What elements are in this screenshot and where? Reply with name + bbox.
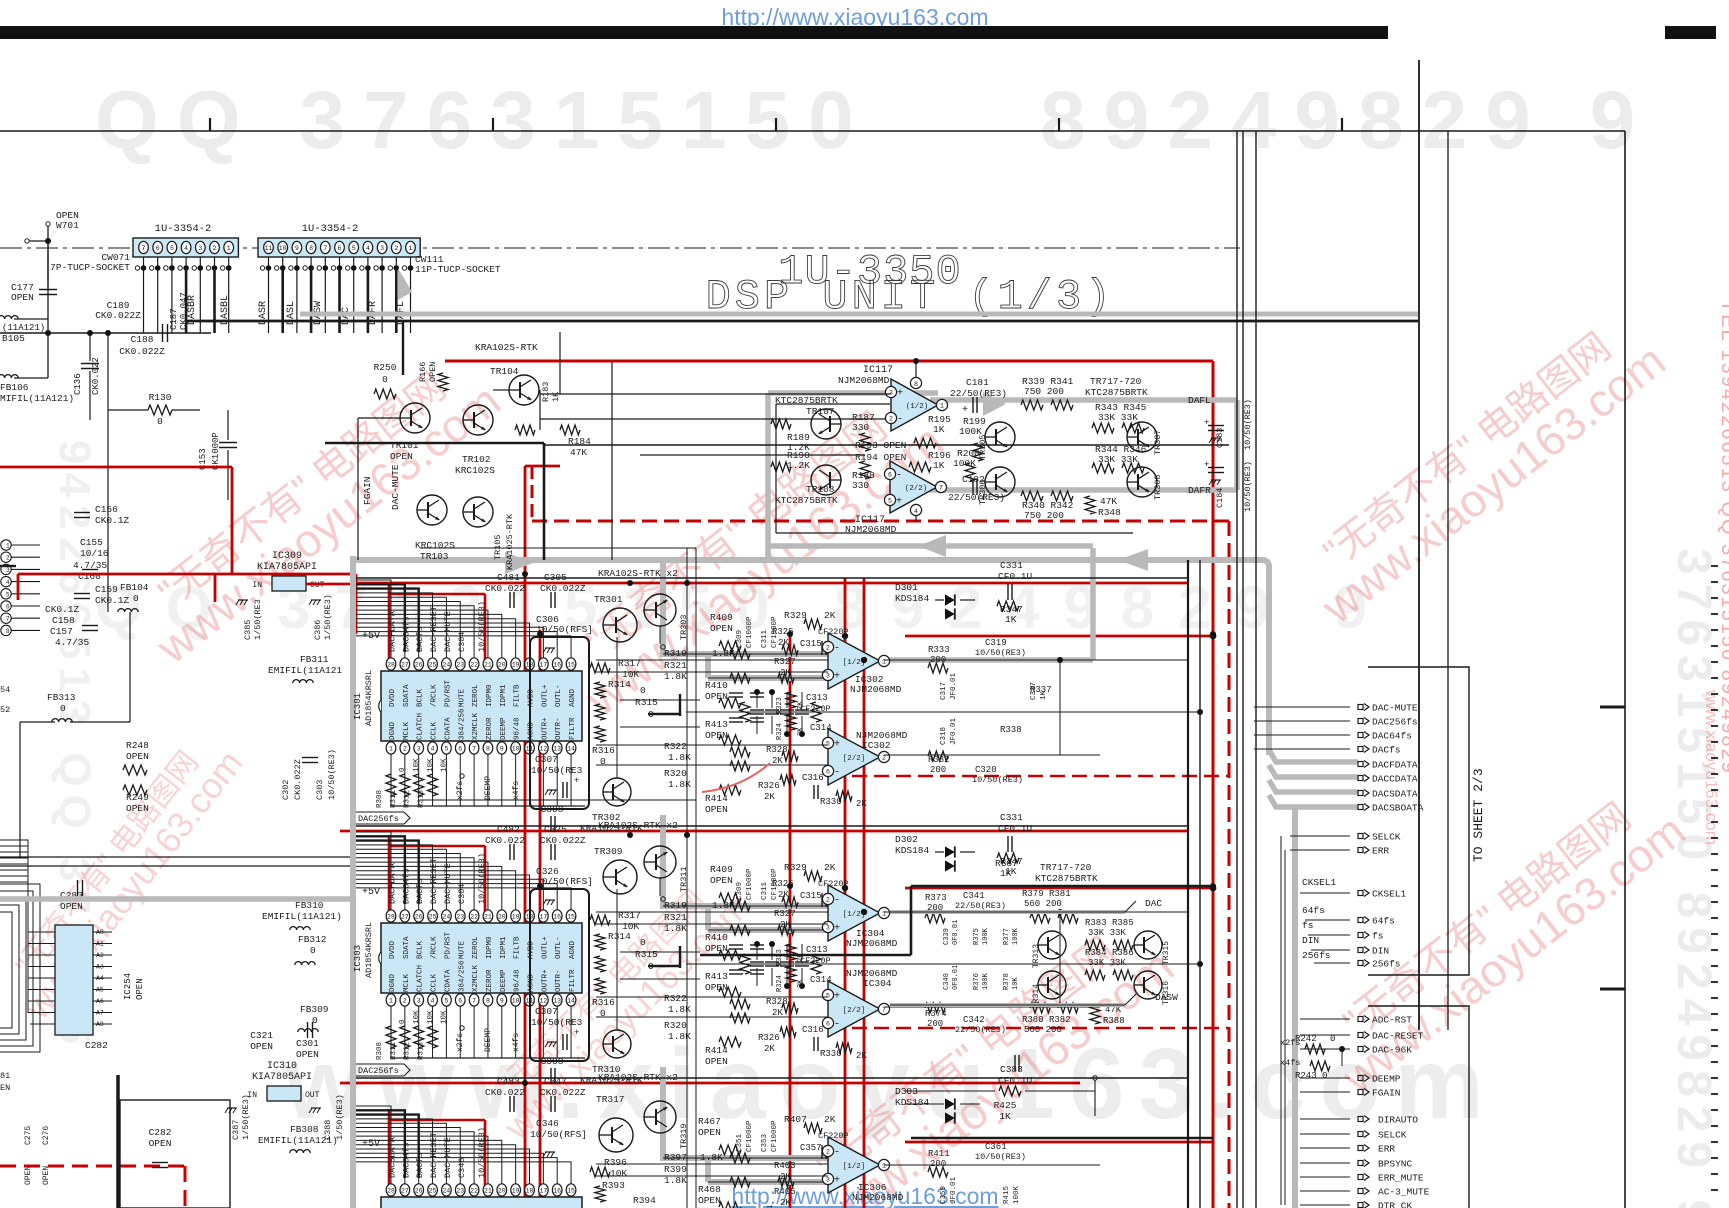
svg-text:CF1000P: CF1000P xyxy=(746,616,754,648)
svg-text:OPEN: OPEN xyxy=(296,1049,319,1060)
svg-text:384/256: 384/256 xyxy=(458,708,466,740)
svg-text:C351: C351 xyxy=(736,1133,744,1152)
svg-text:5: 5 xyxy=(352,245,356,252)
svg-text:96/48: 96/48 xyxy=(514,969,522,992)
svg-text:C282: C282 xyxy=(149,1127,172,1138)
svg-text:3: 3 xyxy=(826,672,830,679)
svg-text:A2: A2 xyxy=(96,952,104,959)
svg-text:C156: C156 xyxy=(95,504,118,515)
svg-text:23: 23 xyxy=(456,662,464,669)
svg-text:FB309: FB309 xyxy=(300,1004,329,1015)
svg-text:23: 23 xyxy=(456,1188,464,1195)
svg-text:1: 1 xyxy=(940,402,944,409)
svg-text:28: 28 xyxy=(387,1188,395,1195)
svg-text:DAC-MUTE: DAC-MUTE xyxy=(443,863,453,904)
svg-text:DAC64fs: DAC64fs xyxy=(401,616,411,652)
svg-text:CCLK: CCLK xyxy=(431,721,439,740)
svg-text:8: 8 xyxy=(486,746,490,753)
svg-text:384/256: 384/256 xyxy=(458,960,466,992)
svg-text:256fs: 256fs xyxy=(1372,959,1401,970)
svg-text:OPEN: OPEN xyxy=(705,691,728,702)
svg-text:1: 1 xyxy=(6,543,10,550)
svg-text:C317: C317 xyxy=(940,682,948,700)
svg-text:25: 25 xyxy=(429,662,437,669)
svg-text:DAC-MUTE: DAC-MUTE xyxy=(443,611,453,652)
svg-text:C386: C386 xyxy=(313,620,323,640)
svg-text:19: 19 xyxy=(512,1188,520,1195)
svg-text:2: 2 xyxy=(826,896,830,903)
svg-text:C331: C331 xyxy=(1000,812,1023,823)
svg-text:26: 26 xyxy=(415,662,423,669)
svg-text:560 200: 560 200 xyxy=(1024,1025,1062,1035)
svg-text:R393: R393 xyxy=(602,1180,625,1191)
svg-text:6: 6 xyxy=(156,245,160,252)
svg-text:R315: R315 xyxy=(635,697,658,708)
svg-text:7: 7 xyxy=(472,746,476,753)
svg-text:2K: 2K xyxy=(764,792,775,802)
svg-text:KRA102S-RTK x2: KRA102S-RTK x2 xyxy=(598,820,678,831)
svg-text:R403: R403 xyxy=(774,1161,796,1171)
svg-text:R388: R388 xyxy=(1103,1016,1125,1026)
svg-text:DVDD: DVDD xyxy=(389,940,397,959)
svg-text:C311: C311 xyxy=(761,881,769,900)
svg-text:10/50(RE3): 10/50(RE3) xyxy=(327,749,337,800)
svg-text:0: 0 xyxy=(157,416,163,427)
svg-text:R320: R320 xyxy=(664,1020,687,1031)
svg-text:100K: 100K xyxy=(959,426,982,437)
svg-text:R373: R373 xyxy=(925,893,947,903)
svg-text:+: + xyxy=(1204,418,1209,428)
svg-text:-: - xyxy=(834,1148,840,1159)
svg-text:R324: R324 xyxy=(776,975,784,992)
svg-text:x4fs: x4fs xyxy=(512,1033,521,1052)
svg-text:TR103: TR103 xyxy=(420,551,449,562)
svg-text:-: - xyxy=(834,768,840,779)
svg-text:DIN: DIN xyxy=(1372,946,1389,957)
svg-text:R468: R468 xyxy=(698,1184,721,1195)
svg-text:KRA102S-RTK x2: KRA102S-RTK x2 xyxy=(598,568,678,579)
svg-text:X2MCLK: X2MCLK xyxy=(472,964,480,992)
svg-text:ERR: ERR xyxy=(1372,846,1389,857)
svg-text:DEEMP: DEEMP xyxy=(484,776,493,800)
svg-text:C275: C275 xyxy=(24,1126,33,1145)
svg-text:D302: D302 xyxy=(895,834,918,845)
svg-text:FB106: FB106 xyxy=(0,382,29,393)
svg-text:IC309: IC309 xyxy=(272,551,302,562)
svg-text:OUT: OUT xyxy=(310,581,325,590)
svg-text:EMIFIL(11A121): EMIFIL(11A121) xyxy=(262,911,342,922)
svg-text:10/50(RFS]: 10/50(RFS] xyxy=(536,624,593,635)
svg-text:AGND: AGND xyxy=(528,973,536,992)
svg-text:33K 33K: 33K 33K xyxy=(1088,928,1126,938)
svg-text:1/50(RE3): 1/50(RE3) xyxy=(323,594,333,640)
svg-text:10/50(RE3): 10/50(RE3) xyxy=(1243,399,1253,450)
svg-text:OPEN: OPEN xyxy=(42,1166,51,1185)
svg-text:OPEN: OPEN xyxy=(126,751,149,762)
svg-text:+5V: +5V xyxy=(362,887,380,898)
svg-text:/RCLK: /RCLK xyxy=(431,684,439,707)
svg-text:7: 7 xyxy=(939,484,943,491)
svg-text:1: 1 xyxy=(389,746,393,753)
svg-text:6: 6 xyxy=(458,998,462,1005)
svg-text:C361: C361 xyxy=(985,1142,1007,1152)
svg-text:1.8K: 1.8K xyxy=(668,752,691,763)
svg-text:1K: 1K xyxy=(933,424,945,435)
svg-text:7P-TUCP-SOCKET: 7P-TUCP-SOCKET xyxy=(50,262,130,273)
svg-text:6: 6 xyxy=(826,1020,830,1027)
svg-text:R348: R348 xyxy=(1098,507,1121,518)
svg-text:24: 24 xyxy=(442,1188,450,1195)
svg-text:10K: 10K xyxy=(1012,977,1020,990)
svg-text:33K 33K: 33K 33K xyxy=(1098,412,1138,423)
svg-text:C188: C188 xyxy=(131,334,154,345)
svg-text:IC254: IC254 xyxy=(123,973,133,1000)
svg-text:R405: R405 xyxy=(774,1187,796,1197)
svg-text:27: 27 xyxy=(401,662,409,669)
svg-text:100K: 100K xyxy=(982,972,990,990)
svg-text:R375: R375 xyxy=(973,928,981,945)
svg-text:CLATCH: CLATCH xyxy=(417,965,425,992)
svg-text:OUTR+: OUTR+ xyxy=(541,969,549,992)
svg-text:CF1000P: CF1000P xyxy=(746,868,754,900)
svg-text:10K: 10K xyxy=(610,1168,627,1179)
svg-text:2: 2 xyxy=(826,644,830,651)
svg-text:1U-3354-2: 1U-3354-2 xyxy=(302,223,359,235)
svg-text:47K: 47K xyxy=(570,447,587,458)
svg-text:21: 21 xyxy=(484,1188,492,1195)
svg-text:200: 200 xyxy=(930,765,946,775)
svg-text:-: - xyxy=(897,415,903,426)
svg-text:4: 4 xyxy=(6,579,10,586)
svg-text:SDATA: SDATA xyxy=(403,684,411,707)
svg-text:0F0.01: 0F0.01 xyxy=(952,920,960,945)
svg-text:A6: A6 xyxy=(96,998,104,1005)
svg-text:6: 6 xyxy=(458,746,462,753)
svg-text:KDS184: KDS184 xyxy=(895,593,930,604)
svg-text:33K 33K: 33K 33K xyxy=(1098,454,1138,465)
svg-text:2: 2 xyxy=(213,245,217,252)
svg-text:OPEN: OPEN xyxy=(705,943,728,954)
svg-text:R377: R377 xyxy=(1003,928,1011,945)
svg-text:89249829 9: 89249829 9 xyxy=(1040,75,1653,166)
svg-text:OPEN: OPEN xyxy=(250,1041,273,1052)
svg-text:DACfs: DACfs xyxy=(415,1152,425,1178)
svg-text:CK0.047: CK0.047 xyxy=(179,292,189,330)
svg-text:IN: IN xyxy=(252,581,262,590)
svg-text:2: 2 xyxy=(394,245,398,252)
svg-text:1.8K: 1.8K xyxy=(664,1175,687,1186)
svg-text:KTC2875BRTK: KTC2875BRTK xyxy=(775,495,838,506)
svg-text:200: 200 xyxy=(927,1019,943,1029)
svg-text:TR102: TR102 xyxy=(462,454,491,465)
svg-text:+: + xyxy=(834,992,840,1003)
svg-text:AD1854KRSRL: AD1854KRSRL xyxy=(364,670,374,726)
svg-text:TR301: TR301 xyxy=(594,594,623,605)
svg-text:10/50(RFS]: 10/50(RFS] xyxy=(530,1129,587,1140)
svg-text:C319: C319 xyxy=(985,638,1007,648)
svg-text:A3: A3 xyxy=(96,964,104,971)
svg-text:0: 0 xyxy=(382,374,388,385)
svg-text:4: 4 xyxy=(431,746,435,753)
svg-text:OPEN: OPEN xyxy=(705,804,728,815)
svg-text:AGND: AGND xyxy=(569,688,577,707)
svg-text:20: 20 xyxy=(498,914,506,921)
svg-text:10/50(RE3): 10/50(RE3) xyxy=(975,648,1026,658)
svg-text:DEEMP: DEEMP xyxy=(500,969,508,992)
svg-text:16: 16 xyxy=(553,662,561,669)
svg-text:2: 2 xyxy=(826,1148,830,1155)
svg-text:2K: 2K xyxy=(856,799,867,809)
svg-text:10/50(RE3): 10/50(RE3) xyxy=(972,775,1023,785)
svg-text:+: + xyxy=(1204,460,1209,470)
svg-text:ZEROR: ZEROR xyxy=(486,969,494,992)
svg-text:OPEN: OPEN xyxy=(60,901,83,912)
svg-text:FILTR: FILTR xyxy=(569,717,577,740)
svg-text:A1: A1 xyxy=(96,941,104,948)
svg-text:28: 28 xyxy=(387,662,395,669)
svg-text:17: 17 xyxy=(539,662,547,669)
svg-text:27: 27 xyxy=(401,914,409,921)
svg-text:81: 81 xyxy=(0,1071,10,1081)
svg-text:1.8K: 1.8K xyxy=(668,779,691,790)
svg-text:C181: C181 xyxy=(966,377,989,388)
svg-text:AGND: AGND xyxy=(569,940,577,959)
svg-text:[2/2]: [2/2] xyxy=(843,755,866,763)
svg-text:OPEN: OPEN xyxy=(24,1166,33,1185)
svg-text:13: 13 xyxy=(553,746,561,753)
svg-text:OUTL+: OUTL+ xyxy=(541,684,549,707)
svg-text:28: 28 xyxy=(387,914,395,921)
svg-text:6: 6 xyxy=(338,245,342,252)
svg-text:3: 3 xyxy=(198,245,202,252)
svg-text:DAC-RESET: DAC-RESET xyxy=(429,858,439,904)
svg-text:1: 1 xyxy=(882,1162,886,1169)
svg-text:OPEN: OPEN xyxy=(705,982,728,993)
svg-text:NJM2068MD: NJM2068MD xyxy=(845,524,897,535)
svg-text:(2/2): (2/2) xyxy=(905,485,928,493)
svg-text:R327: R327 xyxy=(774,657,796,667)
svg-text:2: 2 xyxy=(403,998,407,1005)
svg-text:fs: fs xyxy=(1372,931,1383,942)
svg-text:0: 0 xyxy=(640,937,646,948)
svg-text:C187: C187 xyxy=(169,308,179,330)
svg-text:DAC: DAC xyxy=(1145,898,1162,909)
svg-text:DAC-MUTE: DAC-MUTE xyxy=(1372,703,1418,714)
svg-text:47K: 47K xyxy=(1100,496,1117,507)
svg-text:[1/2]: [1/2] xyxy=(843,1163,866,1171)
svg-text:3: 3 xyxy=(826,924,830,931)
svg-text:TR309: TR309 xyxy=(594,846,623,857)
svg-text:C158: C158 xyxy=(52,615,75,626)
svg-text:A5: A5 xyxy=(96,987,104,994)
svg-text:R322: R322 xyxy=(664,993,687,1004)
svg-text:R330: R330 xyxy=(820,1049,842,1059)
svg-text:100K: 100K xyxy=(1013,1185,1021,1204)
svg-text:R338: R338 xyxy=(1000,725,1022,735)
svg-text:24: 24 xyxy=(442,662,450,669)
svg-text:10K: 10K xyxy=(441,758,449,772)
svg-text:15: 15 xyxy=(567,1188,575,1195)
svg-text:CK0.022Z: CK0.022Z xyxy=(540,835,586,846)
svg-text:8: 8 xyxy=(914,381,918,388)
svg-text:+: + xyxy=(896,497,902,508)
svg-text:15: 15 xyxy=(567,662,575,669)
svg-text:IDPM1: IDPM1 xyxy=(500,684,508,707)
svg-text:AVDD: AVDD xyxy=(528,688,536,707)
svg-text:C276: C276 xyxy=(42,1126,51,1145)
svg-text:1/50(RE3: 1/50(RE3 xyxy=(253,599,263,640)
svg-text:DAFL: DAFL xyxy=(1188,395,1211,406)
svg-text:C309: C309 xyxy=(736,630,744,648)
svg-text:DGND: DGND xyxy=(389,721,397,740)
svg-text:IC304: IC304 xyxy=(863,978,892,989)
svg-text:IC303: IC303 xyxy=(353,945,363,972)
svg-text:C387: C387 xyxy=(231,1120,241,1140)
svg-text:KIA7805API: KIA7805API xyxy=(252,1072,312,1083)
svg-text:DAC64fs: DAC64fs xyxy=(1372,731,1412,742)
svg-text:KRA102S-RTK x2: KRA102S-RTK x2 xyxy=(598,1072,678,1083)
svg-text:256fs: 256fs xyxy=(1302,950,1331,961)
svg-text:C481: C481 xyxy=(497,572,520,583)
svg-text:6: 6 xyxy=(888,471,892,478)
svg-text:CK0.022Z: CK0.022Z xyxy=(119,346,165,357)
svg-text:OPEN: OPEN xyxy=(428,362,438,382)
svg-text:R248: R248 xyxy=(126,740,149,751)
svg-text:CK1000P: CK1000P xyxy=(211,432,221,470)
svg-text:OUTL-: OUTL- xyxy=(555,684,563,707)
svg-text:1U-3354-2: 1U-3354-2 xyxy=(155,223,212,235)
svg-text:1/50(RE3): 1/50(RE3) xyxy=(335,1094,345,1140)
svg-text:0: 0 xyxy=(1330,1034,1335,1044)
svg-text:MUTE: MUTE xyxy=(458,688,466,707)
svg-text:C340: C340 xyxy=(943,973,951,990)
svg-text:CK0.1Z: CK0.1Z xyxy=(95,515,130,526)
svg-text:9: 9 xyxy=(500,746,504,753)
svg-text:R315: R315 xyxy=(635,949,658,960)
svg-text:DAC-RESET: DAC-RESET xyxy=(429,1132,439,1178)
svg-text:C339: C339 xyxy=(943,928,951,945)
svg-text:KRC102S: KRC102S xyxy=(415,540,455,551)
svg-text:OPEN: OPEN xyxy=(705,1056,728,1067)
svg-text:OUTL+: OUTL+ xyxy=(541,936,549,959)
svg-text:BCLK: BCLK xyxy=(417,688,425,707)
svg-text:2: 2 xyxy=(889,415,893,422)
svg-text:KRA102S-RTK: KRA102S-RTK xyxy=(475,342,538,353)
svg-text:R409: R409 xyxy=(710,864,733,875)
svg-text:CK0.022Z: CK0.022Z xyxy=(293,759,303,800)
svg-text:OPEN: OPEN xyxy=(149,1138,172,1149)
svg-text:JF0.01: JF0.01 xyxy=(950,672,958,700)
svg-text:DAC64fs: DAC64fs xyxy=(401,868,411,904)
svg-text:KRC102S: KRC102S xyxy=(455,465,495,476)
svg-text:TR313: TR313 xyxy=(1032,944,1041,968)
svg-text:MIFIL(11A121): MIFIL(11A121) xyxy=(0,393,74,404)
svg-text:DIN: DIN xyxy=(1302,935,1319,946)
svg-text:DACFDATA: DACFDATA xyxy=(388,610,398,652)
svg-text:4: 4 xyxy=(431,998,435,1005)
svg-text:R410: R410 xyxy=(705,932,728,943)
svg-text:C305: C305 xyxy=(544,572,567,583)
svg-text:22/50(RE3): 22/50(RE3) xyxy=(955,1025,1006,1035)
svg-text:CF0.1U: CF0.1U xyxy=(998,571,1033,582)
svg-text:C155: C155 xyxy=(80,537,103,548)
svg-text:CK0.1Z: CK0.1Z xyxy=(95,595,130,606)
svg-text:R409: R409 xyxy=(710,612,733,623)
svg-text:20: 20 xyxy=(498,662,506,669)
svg-text:C482: C482 xyxy=(497,824,520,835)
svg-text:10K: 10K xyxy=(413,758,421,772)
svg-text:IDPM0: IDPM0 xyxy=(486,936,494,959)
svg-text:W701: W701 xyxy=(56,220,79,231)
svg-text:C385: C385 xyxy=(243,620,253,640)
svg-text:5: 5 xyxy=(6,591,10,598)
svg-text:R320: R320 xyxy=(664,768,687,779)
svg-text:DACSDATA: DACSDATA xyxy=(1372,789,1418,800)
svg-text:OPEN: OPEN xyxy=(705,730,728,741)
svg-text:4: 4 xyxy=(366,245,370,252)
svg-text:10/16: 10/16 xyxy=(80,548,109,559)
svg-text:CK0.022Z: CK0.022Z xyxy=(540,583,586,594)
svg-text:R313: R313 xyxy=(418,1041,426,1060)
svg-text:R326: R326 xyxy=(758,781,780,791)
svg-text:R329: R329 xyxy=(784,862,807,873)
svg-text:SELCK: SELCK xyxy=(1372,832,1401,843)
svg-text:R407: R407 xyxy=(784,1114,807,1125)
svg-text:3: 3 xyxy=(417,746,421,753)
svg-text:10K: 10K xyxy=(427,758,435,772)
svg-text:-: - xyxy=(896,471,902,482)
svg-text:FB104: FB104 xyxy=(120,582,149,593)
svg-text:TO SHEET 2/3: TO SHEET 2/3 xyxy=(1471,768,1486,862)
svg-text:11P-TUCP-SOCKET: 11P-TUCP-SOCKET xyxy=(415,264,501,275)
svg-text:0: 0 xyxy=(60,703,66,714)
svg-text:TR717-720: TR717-720 xyxy=(1040,862,1092,873)
svg-text:R425: R425 xyxy=(994,1100,1017,1111)
svg-text:R311: R311 xyxy=(390,1041,398,1060)
svg-text:17: 17 xyxy=(539,1188,547,1195)
svg-text:C307: C307 xyxy=(535,1006,558,1017)
svg-text:10K: 10K xyxy=(441,1010,449,1024)
svg-text:R380 R382: R380 R382 xyxy=(1022,1015,1071,1025)
svg-text:DACSBOATA: DACSBOATA xyxy=(1372,803,1424,814)
svg-text:0: 0 xyxy=(399,767,407,772)
svg-text:64fs: 64fs xyxy=(1372,916,1395,927)
svg-text:1.8K: 1.8K xyxy=(664,671,687,682)
svg-text:7: 7 xyxy=(6,616,10,623)
svg-text:R399: R399 xyxy=(664,1164,687,1175)
svg-text:2: 2 xyxy=(403,746,407,753)
svg-text:22: 22 xyxy=(470,914,478,921)
svg-text:KTC2875BRTK: KTC2875BRTK xyxy=(1085,387,1148,398)
svg-text:EMIFIL(11A121): EMIFIL(11A121) xyxy=(258,1135,338,1146)
svg-text:9: 9 xyxy=(500,998,504,1005)
svg-text:52: 52 xyxy=(0,705,10,715)
svg-text:C159: C159 xyxy=(95,584,118,595)
svg-text:+: + xyxy=(834,740,840,751)
svg-text:DAC-RESET: DAC-RESET xyxy=(429,606,439,652)
svg-text:DASW: DASW xyxy=(1155,992,1178,1003)
svg-text:R376: R376 xyxy=(973,973,981,990)
svg-text:DACFDATA: DACFDATA xyxy=(1372,760,1418,771)
svg-text:OUTR-: OUTR- xyxy=(555,717,563,740)
svg-text:+: + xyxy=(834,924,840,935)
svg-text:C325: C325 xyxy=(544,824,567,835)
svg-text:C315: C315 xyxy=(800,891,822,901)
svg-text:0: 0 xyxy=(133,593,139,604)
svg-text:R250: R250 xyxy=(374,362,397,373)
svg-text:10: 10 xyxy=(512,746,520,753)
svg-text:10/50(RE3): 10/50(RE3) xyxy=(975,1152,1026,1162)
